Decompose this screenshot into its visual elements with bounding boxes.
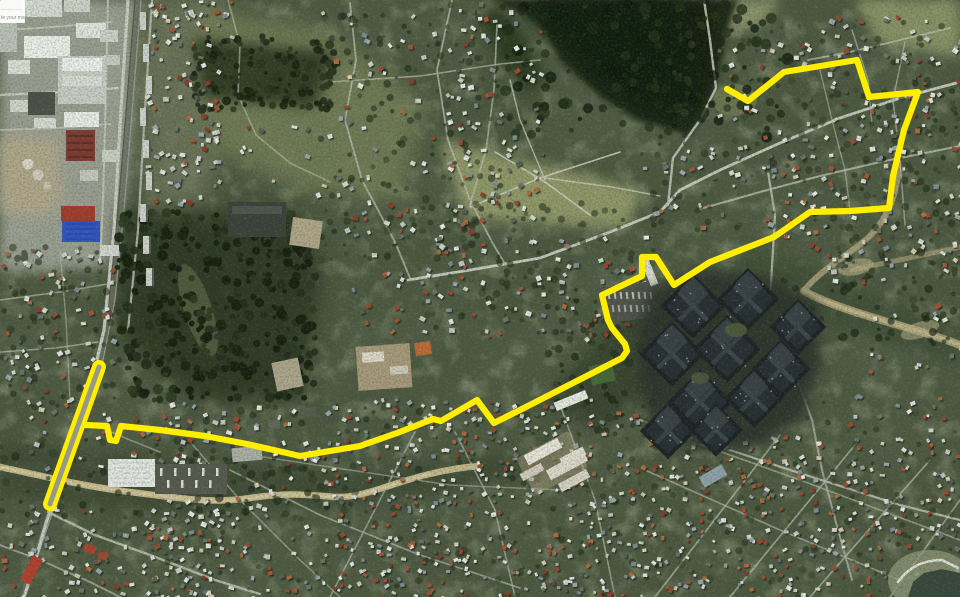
svg-text:_____ ___: _____ ___ bbox=[0, 5, 23, 10]
svg-text:te your map: te your map bbox=[1, 15, 28, 21]
